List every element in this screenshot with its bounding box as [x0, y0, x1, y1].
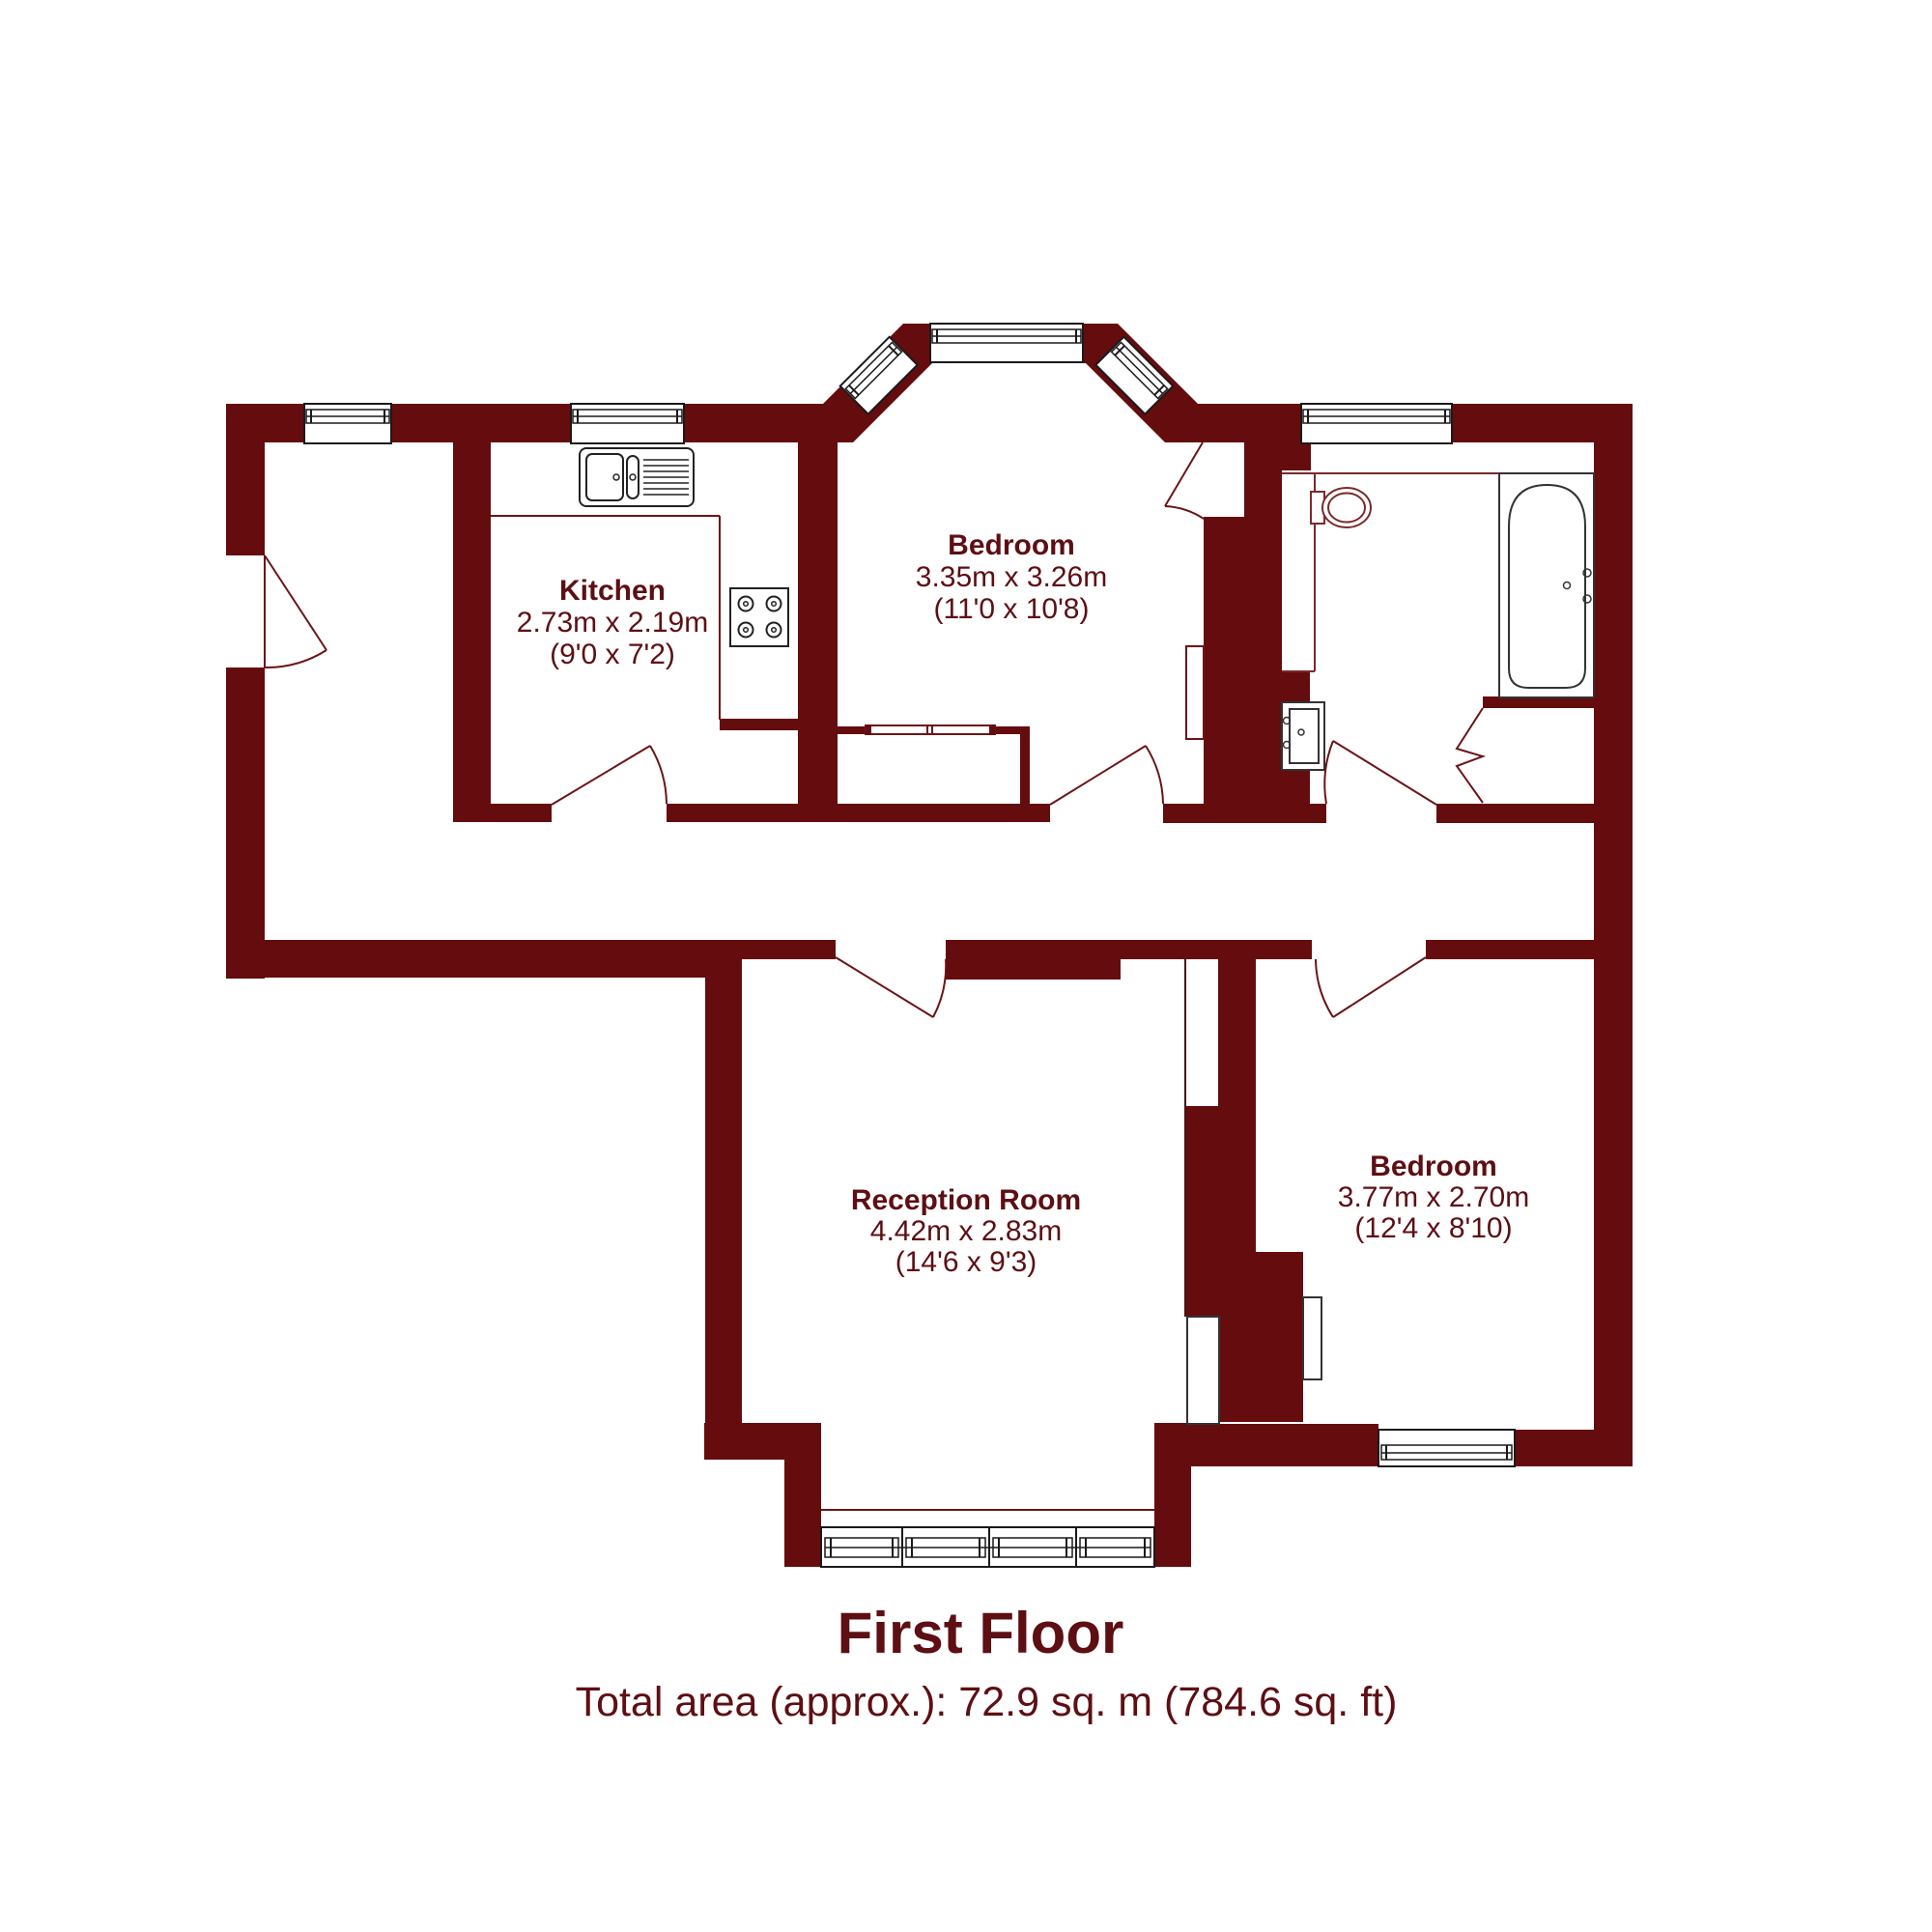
svg-text:First Floor: First Floor: [838, 1601, 1124, 1665]
svg-text:Total area (approx.): 72.9 sq.: Total area (approx.): 72.9 sq. m (784.6 …: [576, 1679, 1398, 1725]
svg-text:Kitchen: Kitchen: [559, 575, 666, 607]
svg-text:(9'0 x 7'2): (9'0 x 7'2): [550, 639, 675, 670]
svg-text:3.35m x 3.26m: 3.35m x 3.26m: [916, 561, 1107, 593]
svg-text:(11'0 x 10'8): (11'0 x 10'8): [934, 593, 1090, 625]
svg-text:Bedroom: Bedroom: [948, 529, 1075, 561]
svg-text:(14'6 x 9'3): (14'6 x 9'3): [895, 1246, 1037, 1278]
svg-text:3.77m x 2.70m: 3.77m x 2.70m: [1338, 1181, 1529, 1213]
svg-text:Bedroom: Bedroom: [1370, 1151, 1497, 1182]
svg-text:4.42m x 2.83m: 4.42m x 2.83m: [870, 1215, 1062, 1247]
svg-text:(12'4 x 8'10): (12'4 x 8'10): [1354, 1212, 1512, 1244]
svg-text:2.73m x 2.19m: 2.73m x 2.19m: [517, 607, 708, 639]
svg-text:Reception Room: Reception Room: [851, 1184, 1081, 1216]
